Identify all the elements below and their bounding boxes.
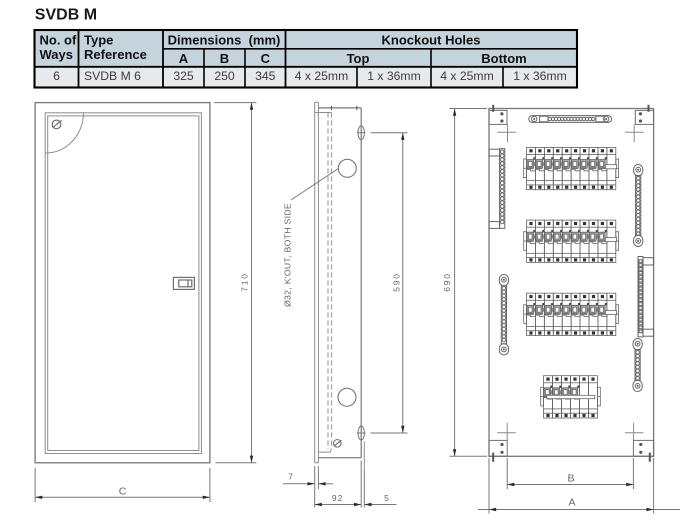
svg-text:Dimensions (mm): Dimensions (mm) [168, 33, 281, 48]
svg-text:Top: Top [347, 51, 370, 66]
svg-text:92: 92 [332, 493, 343, 503]
svg-text:A: A [179, 51, 189, 66]
svg-text:590: 590 [392, 272, 402, 292]
svg-text:7: 7 [288, 471, 293, 481]
svg-text:B: B [567, 472, 574, 484]
svg-text:345: 345 [255, 69, 276, 83]
svg-text:690: 690 [442, 272, 452, 292]
svg-text:SVDB M 6: SVDB M 6 [84, 69, 141, 83]
svg-text:Bottom: Bottom [481, 51, 527, 66]
svg-text:Ways: Ways [40, 47, 73, 62]
svg-text:250: 250 [214, 69, 235, 83]
svg-text:325: 325 [173, 69, 194, 83]
svg-text:6: 6 [53, 69, 60, 83]
svg-text:B: B [220, 51, 229, 66]
svg-text:710: 710 [239, 272, 249, 292]
svg-text:Reference: Reference [84, 47, 147, 62]
svg-text:4 x 25mm: 4 x 25mm [440, 69, 494, 83]
svg-text:SVDB M: SVDB M [35, 7, 97, 24]
svg-text:Type: Type [84, 33, 113, 48]
svg-text:C: C [119, 485, 127, 497]
svg-text:1 x 36mm: 1 x 36mm [513, 69, 567, 83]
svg-text:A: A [568, 496, 575, 508]
svg-text:5: 5 [384, 493, 389, 503]
svg-text:No. of: No. of [40, 33, 77, 48]
svg-text:1 x 36mm: 1 x 36mm [367, 69, 421, 83]
svg-text:C: C [261, 51, 271, 66]
svg-text:4 x 25mm: 4 x 25mm [295, 69, 349, 83]
svg-text:Knockout Holes: Knockout Holes [382, 33, 481, 48]
svg-text:Ø32, K'OUT, BOTH SIDE: Ø32, K'OUT, BOTH SIDE [283, 203, 293, 307]
